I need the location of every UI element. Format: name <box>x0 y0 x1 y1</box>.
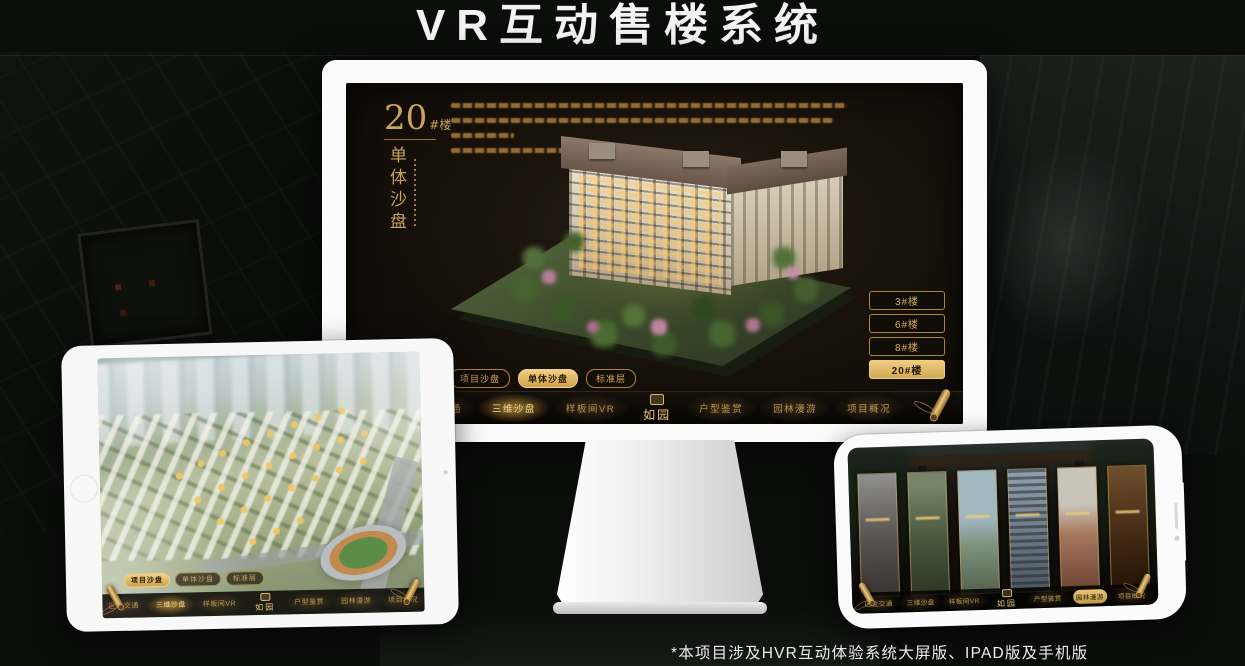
section-subtitle-english <box>414 159 416 229</box>
building-selector: 3#楼 6#楼 8#楼 20#楼 <box>869 291 945 379</box>
nav-label: 园林漫游 <box>341 598 371 606</box>
model-gable <box>589 143 615 159</box>
poster: VR互动售楼系统 20#楼 单体沙盘 <box>0 0 1245 666</box>
tab-single-sandtable[interactable]: 单体沙盘 <box>518 369 578 388</box>
nav-label: 户型鉴赏 <box>294 599 324 607</box>
page-title: VR互动售楼系统 <box>0 2 1245 50</box>
camera-icon <box>1174 536 1179 541</box>
tab-single-sandtable[interactable]: 单体沙盘 <box>175 572 221 587</box>
tablet-home-button <box>70 474 99 503</box>
building-number-suffix: #楼 <box>429 118 451 132</box>
logo-seal-icon <box>1001 588 1011 596</box>
building-heading: 20#楼 单体沙盘 <box>384 101 454 256</box>
logo-text: 如园 <box>643 406 671 423</box>
logo-text: 如园 <box>255 602 275 613</box>
nav-label: 样板间VR <box>949 597 980 605</box>
nav-garden-roam[interactable]: 园林漫游 <box>765 397 825 419</box>
building-button-20[interactable]: 20#楼 <box>869 360 945 379</box>
scene-gallery <box>848 464 1158 598</box>
heading-rule <box>384 139 436 140</box>
tablet-camera-icon <box>444 470 448 474</box>
gallery-panel[interactable] <box>1107 465 1150 590</box>
logo-seal-icon <box>260 593 270 601</box>
logo-seal-icon <box>650 394 664 405</box>
tablet-view-tabs: 项目沙盘 单体沙盘 标准层 <box>124 571 264 588</box>
nav-3d-sandtable[interactable]: 三维沙盘 <box>484 397 544 419</box>
nav-showroom-vr[interactable]: 样板间VR <box>946 592 983 607</box>
tab-standard-floor[interactable]: 标准层 <box>226 571 264 586</box>
nav-label: 园林漫游 <box>773 404 817 415</box>
gallery-panel[interactable] <box>857 473 900 598</box>
building-number: 20#楼 <box>384 101 454 135</box>
building-number-value: 20 <box>384 98 427 138</box>
nav-label: 户型鉴赏 <box>1034 595 1062 603</box>
nav-showroom-vr[interactable]: 样板间VR <box>558 397 623 419</box>
model-flowers <box>451 135 455 139</box>
nav-label: 样板间VR <box>566 404 615 415</box>
nav-label: 三维沙盘 <box>492 404 536 415</box>
brand-logo: 如园 <box>255 593 275 613</box>
nav-project-overview[interactable]: 项目概况 <box>839 397 899 419</box>
model-gable <box>683 151 709 167</box>
nav-label: 三维沙盘 <box>156 602 186 610</box>
tablet-device: 项目沙盘 单体沙盘 标准层 区位交通 三维沙盘 样板间VR 如园 户型鉴赏 园林… <box>61 338 459 632</box>
nav-label: 户型鉴赏 <box>699 404 743 415</box>
gallery-panel[interactable] <box>1057 466 1100 591</box>
description-line <box>451 118 834 123</box>
nav-unit-appreciation[interactable]: 户型鉴赏 <box>290 595 328 610</box>
brand-logo: 如园 <box>643 394 671 423</box>
nav-label: 项目概况 <box>847 404 891 415</box>
nav-3d-sandtable[interactable]: 三维沙盘 <box>152 597 190 612</box>
nav-label: 园林漫游 <box>1076 594 1104 602</box>
gallery-panel[interactable] <box>907 471 950 596</box>
view-tabs: 项目沙盘 单体沙盘 标准层 <box>450 369 636 388</box>
nav-unit-appreciation[interactable]: 户型鉴赏 <box>691 397 751 419</box>
background-aerial-right <box>980 55 1245 455</box>
gallery-panel[interactable] <box>1007 468 1050 593</box>
monitor-base <box>553 602 767 614</box>
monitor-stand <box>557 440 763 608</box>
section-title-vertical: 单体沙盘 <box>384 146 409 256</box>
nav-garden-roam[interactable]: 园林漫游 <box>1073 588 1107 603</box>
description-line <box>451 103 847 108</box>
building-3d-model[interactable] <box>451 135 871 385</box>
nav-garden-roam[interactable]: 园林漫游 <box>337 594 375 609</box>
tablet-screen: 项目沙盘 单体沙盘 标准层 区位交通 三维沙盘 样板间VR 如园 户型鉴赏 园林… <box>97 352 424 619</box>
footnote: *本项目涉及HVR互动体验系统大屏版、IPAD版及手机版 <box>671 641 1088 663</box>
nav-label: 样板间VR <box>203 601 236 609</box>
gallery-panel[interactable] <box>957 469 1000 594</box>
building-button-3[interactable]: 3#楼 <box>869 291 945 310</box>
logo-text: 如园 <box>997 597 1017 609</box>
phone-device: 区位交通 三维沙盘 样板间VR 如园 户型鉴赏 园林漫游 项目概况 <box>833 425 1187 630</box>
tab-project-sandtable[interactable]: 项目沙盘 <box>450 369 510 388</box>
building-button-6[interactable]: 6#楼 <box>869 314 945 333</box>
brand-logo: 如园 <box>996 588 1017 609</box>
phone-notch <box>1167 483 1186 561</box>
nav-showroom-vr[interactable]: 样板间VR <box>199 596 241 611</box>
speaker-icon <box>1174 503 1178 529</box>
nav-label: 三维沙盘 <box>907 599 935 607</box>
model-gable <box>781 151 807 167</box>
building-button-8[interactable]: 8#楼 <box>869 337 945 356</box>
background-plaque <box>77 219 212 349</box>
phone-screen: 区位交通 三维沙盘 样板间VR 如园 户型鉴赏 园林漫游 项目概况 <box>847 438 1158 614</box>
nav-unit-appreciation[interactable]: 户型鉴赏 <box>1031 590 1065 605</box>
tab-standard-floor[interactable]: 标准层 <box>586 369 636 388</box>
scroll-menu-icon[interactable] <box>929 388 952 420</box>
tab-project-sandtable[interactable]: 项目沙盘 <box>124 573 170 588</box>
divider <box>0 55 1245 56</box>
nav-3d-sandtable[interactable]: 三维沙盘 <box>904 594 938 609</box>
